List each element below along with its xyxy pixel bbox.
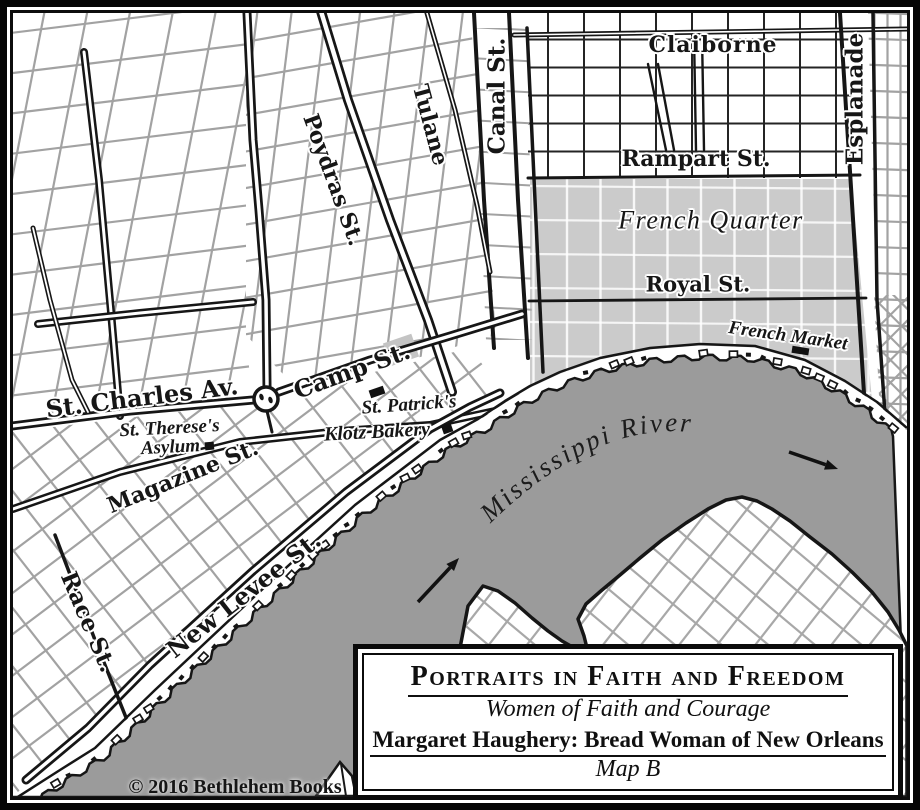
series-subtitle: Women of Faith and Courage [486, 697, 770, 721]
map-title-box-inner: Portraits in Faith and Freedom Women of … [362, 653, 894, 791]
street-label-esplanade: Esplanade [843, 33, 866, 166]
street-label-canal: Canal St. [485, 38, 508, 155]
region-label-french-quarter: French Quarter [618, 208, 803, 235]
book-title-text: Margaret Haughery: Bread Woman of New Or… [370, 727, 885, 757]
map-sheet-label: Map B [596, 757, 661, 781]
street-label-royal: Royal St. [646, 273, 751, 294]
lee-circle [254, 387, 278, 411]
book-title: Margaret Haughery: Bread Woman of New Or… [370, 728, 885, 751]
series-title-text: Portraits in Faith and Freedom [408, 661, 849, 697]
street-label-rampart: Rampart St. [621, 148, 770, 170]
street-label-claiborne: Claiborne [648, 34, 777, 56]
series-title: Portraits in Faith and Freedom [408, 663, 849, 691]
map-title-box: Portraits in Faith and Freedom Women of … [353, 644, 903, 800]
new-orleans-map: Mississippi River Claiborne Rampart St. … [0, 0, 920, 810]
copyright-notice: © 2016 Bethlehem Books [128, 777, 341, 797]
